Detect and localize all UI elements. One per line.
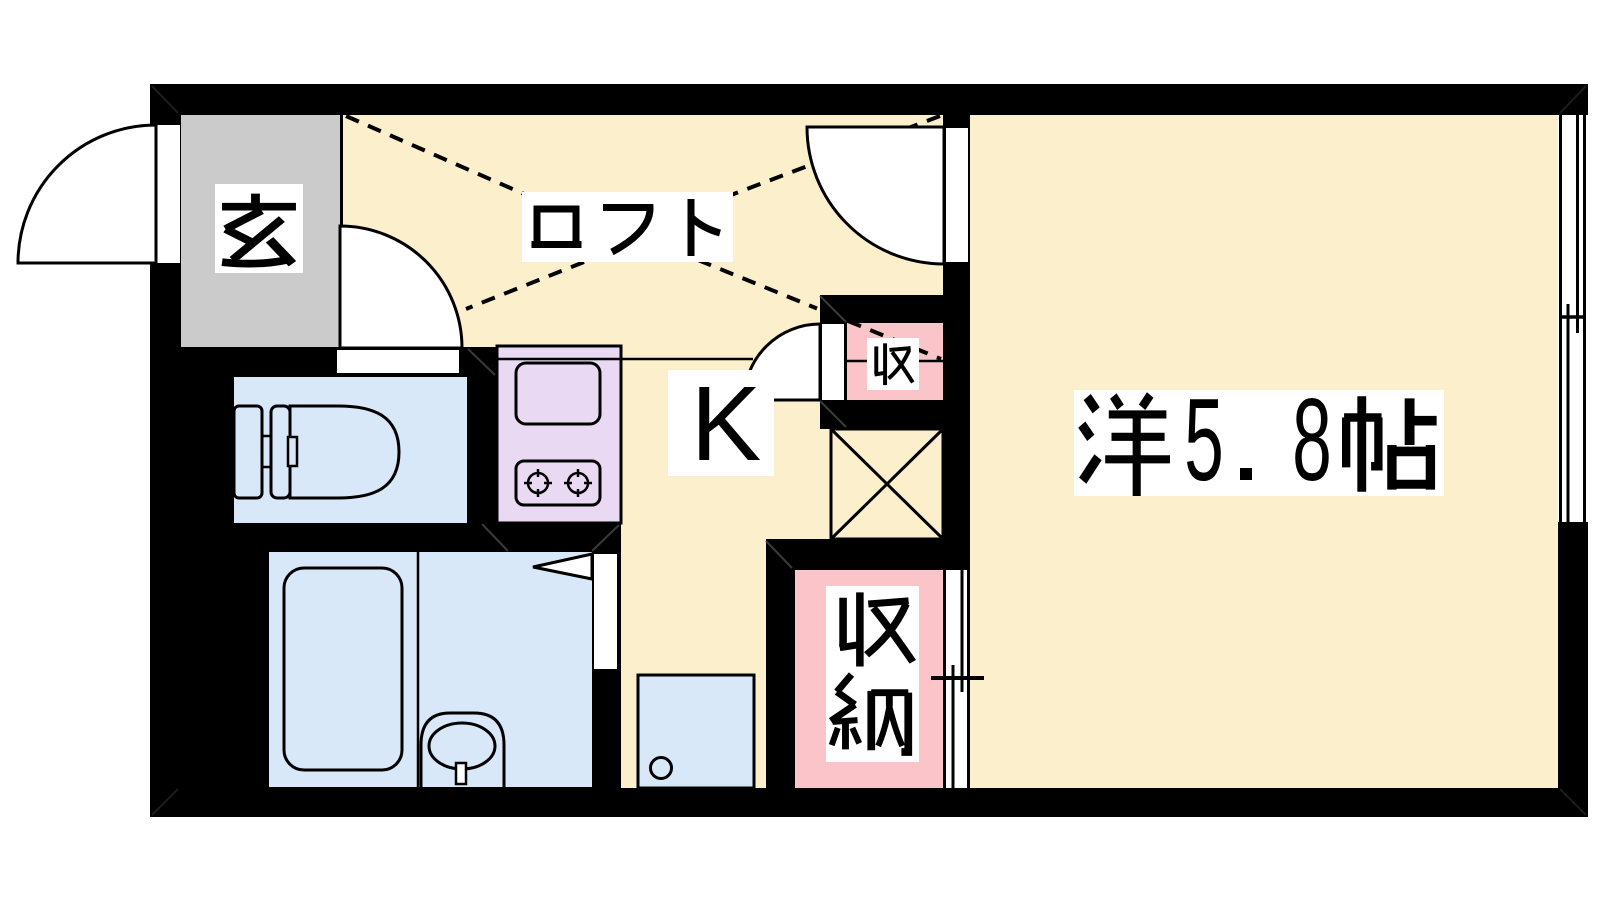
svg-text:5: 5 (1184, 374, 1224, 506)
svg-text:8: 8 (1292, 374, 1332, 506)
svg-text:K: K (691, 365, 762, 483)
